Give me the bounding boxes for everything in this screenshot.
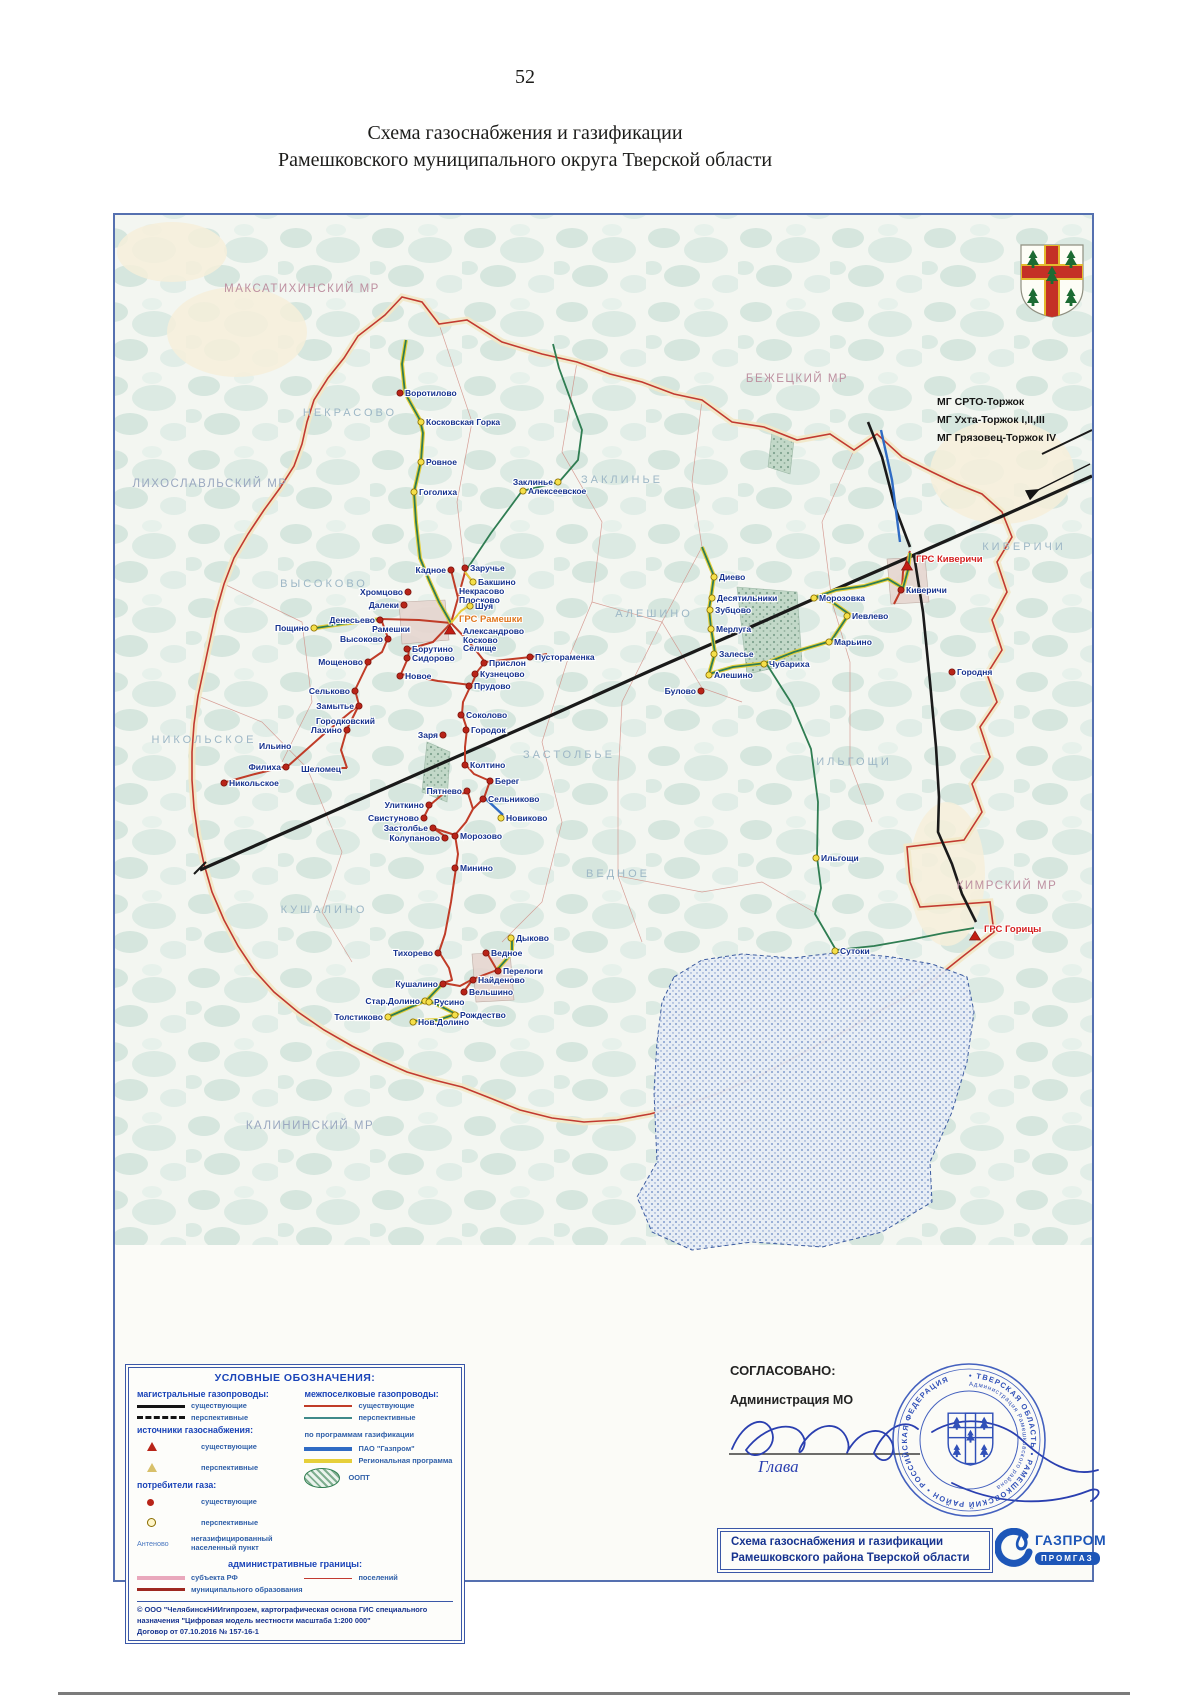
area-label: ВЕДНОЕ bbox=[586, 868, 650, 880]
settlement-label: Сельково bbox=[309, 686, 350, 696]
settlement-dot bbox=[832, 948, 838, 954]
settlement-label: Далеки bbox=[369, 600, 399, 610]
caption-line1: Схема газоснабжения и газификации bbox=[731, 1535, 979, 1551]
settlement: Воротилово bbox=[397, 388, 457, 398]
settlement: Косковская Горка bbox=[418, 417, 501, 427]
legend-label: существующие bbox=[191, 1402, 247, 1411]
settlement-dot bbox=[467, 603, 473, 609]
legend-admin-right: поселений bbox=[304, 1571, 453, 1597]
legend-symbol-lthinred bbox=[304, 1578, 352, 1579]
legend-label: перспективные bbox=[201, 1464, 258, 1473]
legend-label: перспективные bbox=[201, 1519, 258, 1528]
legend-row: перспективные bbox=[137, 1459, 304, 1477]
settlement-dot bbox=[480, 796, 486, 802]
settlement-label: Рамешки bbox=[372, 624, 410, 634]
neighbor-district-label: КАЛИНИНСКИЙ МР bbox=[246, 1119, 374, 1132]
settlement: Стар.Долино bbox=[365, 996, 428, 1006]
settlement-label: Толстиково bbox=[334, 1012, 383, 1022]
map-frame: ВоротиловоКосковская ГоркаРовноеГоголиха… bbox=[113, 213, 1094, 1582]
round-stamp: • ТВЕРСКАЯ ОБЛАСТЬ • РАМЕШКОВСКИЙ РАЙОН … bbox=[893, 1364, 1045, 1516]
legend-title: УСЛОВНЫЕ ОБОЗНАЧЕНИЯ: bbox=[137, 1372, 453, 1384]
settlement-dot bbox=[461, 989, 467, 995]
settlement-dot bbox=[452, 865, 458, 871]
legend-section-header: источники газоснабжения: bbox=[137, 1425, 304, 1435]
settlement-label: Ильгощи bbox=[821, 853, 859, 863]
settlement-label: Воротилово bbox=[405, 388, 457, 398]
settlement-label: Дыково bbox=[516, 933, 549, 943]
settlement: Найденово bbox=[470, 975, 525, 985]
settlement-label: Заря bbox=[418, 730, 438, 740]
settlement-label: Лахино bbox=[311, 725, 342, 735]
legend-symbol-lpink bbox=[137, 1576, 185, 1580]
settlement-dot bbox=[709, 595, 715, 601]
settlement-dot bbox=[707, 607, 713, 613]
settlement-label: Новое bbox=[405, 671, 432, 681]
legend-section-header: межпоселковые газопроводы: bbox=[304, 1389, 453, 1399]
settlement: Ильино bbox=[259, 741, 291, 751]
settlement-label: Застолбье bbox=[384, 823, 429, 833]
legend-section-header: потребители газа: bbox=[137, 1480, 304, 1490]
legend-label: существующие bbox=[201, 1443, 257, 1452]
settlement: Нов.Долино bbox=[410, 1017, 469, 1027]
settlement-label: Пощино bbox=[275, 623, 309, 633]
settlement-label: Пустораменка bbox=[535, 652, 595, 662]
area-label: ЗАСТОЛБЬЕ bbox=[523, 749, 615, 761]
settlement-label: Кузнецово bbox=[480, 669, 525, 679]
cream-tint bbox=[167, 287, 307, 377]
logo-brand-text: ГАЗПРОМ bbox=[1035, 1532, 1106, 1548]
settlement-label: Минино bbox=[460, 863, 493, 873]
legend-label: поселений bbox=[358, 1574, 397, 1583]
settlement: Кузнецово bbox=[472, 669, 525, 679]
settlement-label: Алешино bbox=[714, 670, 753, 680]
settlement-label: Денесьево bbox=[329, 615, 375, 625]
settlement-label: Чубариха bbox=[769, 659, 810, 669]
legend-label: негазифицированный населенный пункт bbox=[191, 1535, 304, 1552]
settlement: Сельниково bbox=[480, 794, 540, 804]
settlement-dot bbox=[706, 672, 712, 678]
settlement-label: Сельниково bbox=[488, 794, 540, 804]
area-label: КИВЕРИЧИ bbox=[982, 541, 1065, 553]
legend-symbol-dotfull bbox=[137, 1493, 195, 1511]
settlement-dot bbox=[949, 669, 955, 675]
settlement-dot bbox=[411, 489, 417, 495]
settlement-label: Шеломец bbox=[301, 764, 342, 774]
settlement-label: Заручье bbox=[470, 563, 505, 573]
copyright-line: назначения "Цифровая модель местности ма… bbox=[137, 1616, 453, 1627]
settlement: Толстиково bbox=[334, 1012, 391, 1022]
settlement-label: Десятильники bbox=[717, 593, 777, 603]
legend-symbol-ldarkred bbox=[137, 1588, 185, 1591]
settlement-label: Иевлево bbox=[852, 611, 888, 621]
settlement-dot bbox=[527, 654, 533, 660]
settlement: Свистуново bbox=[368, 813, 427, 823]
legend-row: существующие bbox=[304, 1402, 453, 1411]
legend-example-name: Антеново bbox=[137, 1539, 185, 1548]
legend-label: перспективные bbox=[191, 1414, 248, 1423]
settlement-dot bbox=[397, 673, 403, 679]
settlement-dot bbox=[283, 764, 289, 770]
settlement-dot bbox=[711, 651, 717, 657]
gazprom-flame-icon bbox=[995, 1528, 1033, 1576]
settlement-label: Берег bbox=[495, 776, 520, 786]
settlement: Киверичи bbox=[898, 585, 947, 595]
settlement-label: Ведное bbox=[491, 948, 523, 958]
settlement-dot bbox=[426, 999, 432, 1005]
settlement-label: Ровное bbox=[426, 457, 457, 467]
legend-symbol-lteal bbox=[304, 1417, 352, 1419]
settlement-label: Высоково bbox=[340, 634, 383, 644]
settlement-label: Кадное bbox=[416, 565, 447, 575]
oopt-area bbox=[637, 952, 974, 1250]
legend-symbol-mgdash bbox=[137, 1416, 185, 1419]
area-label: НИКОЛЬСКОЕ bbox=[152, 734, 257, 746]
settlement-label: Прудово bbox=[474, 681, 511, 691]
legend-label: существующие bbox=[201, 1498, 257, 1507]
legend-row: существующие bbox=[137, 1438, 304, 1456]
legend-symbol-lred bbox=[304, 1405, 352, 1407]
settlement-dot bbox=[426, 802, 432, 808]
legend-subheader: по программам газификации bbox=[304, 1430, 453, 1439]
settlement-dot bbox=[440, 981, 446, 987]
copyright-line: Договор от 07.10.2016 № 157-16-1 bbox=[137, 1627, 453, 1638]
settlement-dot bbox=[365, 659, 371, 665]
district-coat-of-arms bbox=[1021, 245, 1083, 319]
legend-row: Антеновонегазифицированный населенный пу… bbox=[137, 1535, 304, 1552]
settlement-label: Сидорово bbox=[412, 653, 455, 663]
mg-pipeline-note: МГ Грязовец-Торжок IV bbox=[937, 432, 1056, 444]
settlement-label: Русино bbox=[434, 997, 464, 1007]
settlement: Селище bbox=[463, 643, 497, 653]
settlement-dot bbox=[811, 595, 817, 601]
logo-sub-text: ПРОМГАЗ bbox=[1035, 1552, 1100, 1565]
settlement-label: Замытье bbox=[316, 701, 354, 711]
settlement-dot bbox=[464, 788, 470, 794]
settlement-dot bbox=[472, 671, 478, 677]
settlement-label: Свистуново bbox=[368, 813, 419, 823]
settlement-label: Найденово bbox=[478, 975, 525, 985]
settlement-dot bbox=[462, 762, 468, 768]
settlement-label: Марьино bbox=[834, 637, 872, 647]
legend-label: Региональная программа bbox=[358, 1457, 452, 1466]
settlement-dot bbox=[826, 639, 832, 645]
settlement-dot bbox=[397, 390, 403, 396]
gazprom-promgaz-logo: ГАЗПРОМ ПРОМГАЗ bbox=[995, 1526, 1095, 1584]
settlement-dot bbox=[418, 419, 424, 425]
grs-label: ГРС Горицы bbox=[984, 924, 1041, 935]
legend-label: ПАО "Газпром" bbox=[358, 1445, 414, 1454]
settlement-label: Мощеново bbox=[318, 657, 363, 667]
settlement-dot bbox=[844, 613, 850, 619]
area-label: ИЛЬГОЩИ bbox=[816, 756, 891, 768]
legend-symbol-mgsolid bbox=[137, 1405, 185, 1408]
settlement-dot bbox=[405, 589, 411, 595]
neighbor-district-label: КИМРСКИЙ МР bbox=[957, 879, 1058, 892]
settlement: Морозовка bbox=[811, 593, 865, 603]
map-caption-box: Схема газоснабжения и газификации Рамешк… bbox=[717, 1528, 993, 1573]
settlement-label: Морозово bbox=[460, 831, 502, 841]
settlement-dot bbox=[498, 815, 504, 821]
settlement-dot bbox=[385, 636, 391, 642]
settlement: Шеломец bbox=[301, 764, 342, 774]
settlement-label: Новиково bbox=[506, 813, 547, 823]
settlement-dot bbox=[555, 479, 561, 485]
legend-row: существующие bbox=[137, 1493, 304, 1511]
page-title-line1: Схема газоснабжения и газификации bbox=[0, 122, 1050, 145]
settlement-label: Булово bbox=[665, 686, 696, 696]
settlement-label: Пятнево bbox=[427, 786, 462, 796]
caption-line2: Рамешковского района Тверской области bbox=[731, 1551, 979, 1567]
legend-row: ООПТ bbox=[304, 1468, 453, 1488]
area-label: ВЫСОКОВО bbox=[280, 578, 368, 590]
grs-label: ГРС Рамешки bbox=[459, 614, 522, 625]
legend-row: муниципального образования bbox=[137, 1586, 304, 1595]
legend-row: поселений bbox=[304, 1574, 453, 1583]
neighbor-district-label: БЕЖЕЦКИЙ МР bbox=[746, 372, 848, 385]
cream-tint bbox=[117, 222, 227, 282]
settlement-label: Прислон bbox=[489, 658, 526, 668]
settlement-label: Никольское bbox=[229, 778, 279, 788]
neighbor-district-label: ЛИХОСЛАВЛЬСКИЙ МР bbox=[132, 477, 287, 490]
settlement: Пустораменка bbox=[527, 652, 595, 662]
settlement-label: Мерлуга bbox=[716, 624, 751, 634]
legend-row: перспективные bbox=[137, 1514, 304, 1532]
area-label: КУШАЛИНО bbox=[281, 904, 368, 916]
settlement-dot bbox=[404, 655, 410, 661]
page-number: 52 bbox=[0, 66, 1050, 89]
grs-label: ГРС Киверичи bbox=[916, 554, 983, 565]
legend-label: субъекта РФ bbox=[191, 1574, 238, 1583]
legend-symbol-lblue bbox=[304, 1447, 352, 1451]
settlement-label: Залесье bbox=[719, 649, 754, 659]
settlement-dot bbox=[495, 968, 501, 974]
settlement-dot bbox=[708, 626, 714, 632]
legend-row: ПАО "Газпром" bbox=[304, 1445, 453, 1454]
legend-admin-left: субъекта РФмуниципального образования bbox=[137, 1571, 304, 1597]
settlement-label: Вельшино bbox=[469, 987, 513, 997]
copyright-line: © ООО "ЧелябинскНИИгипрозем, картографич… bbox=[137, 1605, 453, 1616]
area-label: АЛЕШИНО bbox=[615, 608, 693, 620]
settlement-dot bbox=[442, 835, 448, 841]
settlement-label: Косковская Горка bbox=[426, 417, 500, 427]
settlement: Никольское bbox=[221, 778, 279, 788]
page-title-line2: Рамешковского муниципального округа Твер… bbox=[0, 149, 1050, 172]
map-copyright: © ООО "ЧелябинскНИИгипрозем, картографич… bbox=[137, 1601, 453, 1637]
settlement-dot bbox=[481, 660, 487, 666]
settlement-dot bbox=[452, 833, 458, 839]
settlement-dot bbox=[344, 727, 350, 733]
settlement-dot bbox=[898, 587, 904, 593]
settlement-label: Ильино bbox=[259, 741, 291, 751]
settlement-dot bbox=[520, 488, 526, 494]
settlement-label: Алексеевское bbox=[528, 486, 587, 496]
settlement-label: Зубцово bbox=[715, 605, 751, 615]
legend-symbol-oopt bbox=[304, 1468, 340, 1488]
legend-row: существующие bbox=[137, 1402, 304, 1411]
administration-label: Администрация МО bbox=[730, 1393, 853, 1407]
settlement-dot bbox=[404, 646, 410, 652]
legend-symbol-dotopen bbox=[137, 1514, 195, 1532]
legend-symbol-triopen bbox=[137, 1459, 195, 1477]
settlement: Новиково bbox=[498, 813, 548, 823]
settlement-dot bbox=[463, 727, 469, 733]
legend-admin-header: административные границы: bbox=[137, 1559, 453, 1569]
settlement-dot bbox=[356, 703, 362, 709]
settlement: Чубариха bbox=[761, 659, 810, 669]
legend-label: существующие bbox=[358, 1402, 414, 1411]
neighbor-district-label: МАКСАТИХИНСКИЙ МР bbox=[224, 282, 380, 295]
protected-area bbox=[637, 952, 974, 1250]
settlement-dot bbox=[470, 579, 476, 585]
settlement: Соколово bbox=[458, 710, 507, 720]
settlement-label: Колтино bbox=[470, 760, 505, 770]
legend-right-column: межпоселковые газопроводы:существующиепе… bbox=[304, 1386, 453, 1555]
settlement-label: Селище bbox=[463, 643, 497, 653]
settlement: Колупаново bbox=[389, 833, 448, 843]
settlement-dot bbox=[711, 574, 717, 580]
settlement: Рамешки bbox=[372, 624, 410, 634]
legend-row: перспективные bbox=[304, 1414, 453, 1423]
settlement-label: Тихорево bbox=[393, 948, 433, 958]
legend-symbol-lyellow bbox=[304, 1459, 352, 1463]
settlement: Десятильники bbox=[709, 593, 777, 603]
legend-row: Региональная программа bbox=[304, 1457, 453, 1466]
settlement-label: Филиха bbox=[248, 762, 281, 772]
settlement-dot bbox=[440, 732, 446, 738]
settlement-dot bbox=[813, 855, 819, 861]
signature-caption: Глава bbox=[758, 1457, 799, 1477]
settlement-label: Шуя bbox=[475, 601, 493, 611]
settlement-dot bbox=[311, 625, 317, 631]
settlement: Вельшино bbox=[461, 987, 513, 997]
settlement-dot bbox=[385, 1014, 391, 1020]
legend-left-column: магистральные газопроводы:существующиепе… bbox=[137, 1386, 304, 1555]
settlement-dot bbox=[421, 815, 427, 821]
settlement-label: Колупаново bbox=[389, 833, 440, 843]
settlement-dot bbox=[430, 825, 436, 831]
legend-label: муниципального образования bbox=[191, 1586, 303, 1595]
settlement-dot bbox=[352, 688, 358, 694]
settlement-dot bbox=[483, 950, 489, 956]
settlement: Алексеевское bbox=[520, 486, 587, 496]
legend-label: ООПТ bbox=[348, 1474, 369, 1483]
settlement: Морозово bbox=[452, 831, 502, 841]
settlement-label: Улиткино bbox=[385, 800, 424, 810]
settlement-dot bbox=[448, 567, 454, 573]
area-label: ЗАКЛИНЬЕ bbox=[581, 474, 663, 486]
settlement-dot bbox=[466, 683, 472, 689]
area-label: НЕКРАСОВО bbox=[303, 407, 397, 419]
settlement-label: Городок bbox=[471, 725, 506, 735]
legend-label: перспективные bbox=[358, 1414, 415, 1423]
settlement-label: Кушалино bbox=[395, 979, 438, 989]
settlement-dot bbox=[487, 778, 493, 784]
legend-symbol-trifull bbox=[137, 1438, 195, 1456]
settlement-dot bbox=[435, 950, 441, 956]
settlement-label: Диево bbox=[719, 572, 745, 582]
settlement-label: Гоголиха bbox=[419, 487, 457, 497]
settlement-dot bbox=[761, 661, 767, 667]
legend-row: субъекта РФ bbox=[137, 1574, 304, 1583]
settlement-dot bbox=[221, 780, 227, 786]
settlement-dot bbox=[377, 617, 383, 623]
settlement-dot bbox=[470, 977, 476, 983]
settlement-dot bbox=[698, 688, 704, 694]
legend-section-header: магистральные газопроводы: bbox=[137, 1389, 304, 1399]
settlement-label: Соколово bbox=[466, 710, 507, 720]
mg-pipeline-note: МГ СРТО-Торжок bbox=[937, 396, 1025, 408]
map-legend: УСЛОВНЫЕ ОБОЗНАЧЕНИЯ: магистральные газо… bbox=[125, 1364, 465, 1644]
settlement-label: Нов.Долино bbox=[418, 1017, 469, 1027]
settlement-dot bbox=[508, 935, 514, 941]
settlement-label: Сутоки bbox=[840, 946, 870, 956]
settlement: Сидорово bbox=[404, 653, 455, 663]
settlement-label: Стар.Долино bbox=[365, 996, 420, 1006]
scanned-document-page: 52 Схема газоснабжения и газификации Рам… bbox=[0, 0, 1200, 1697]
mg-pipeline-note: МГ Ухта-Торжок I,II,III bbox=[937, 414, 1045, 426]
settlement-dot bbox=[462, 565, 468, 571]
settlement-label: Городня bbox=[957, 667, 992, 677]
settlement-label: Киверичи bbox=[906, 585, 947, 595]
settlement-dot bbox=[401, 602, 407, 608]
settlement-dot bbox=[410, 1019, 416, 1025]
settlement-dot bbox=[418, 459, 424, 465]
scan-artifact-line bbox=[58, 1692, 1130, 1695]
agreed-label: СОГЛАСОВАНО: bbox=[730, 1363, 836, 1378]
settlement-dot bbox=[458, 712, 464, 718]
settlement-label: Морозовка bbox=[819, 593, 865, 603]
legend-row: перспективные bbox=[137, 1414, 304, 1423]
